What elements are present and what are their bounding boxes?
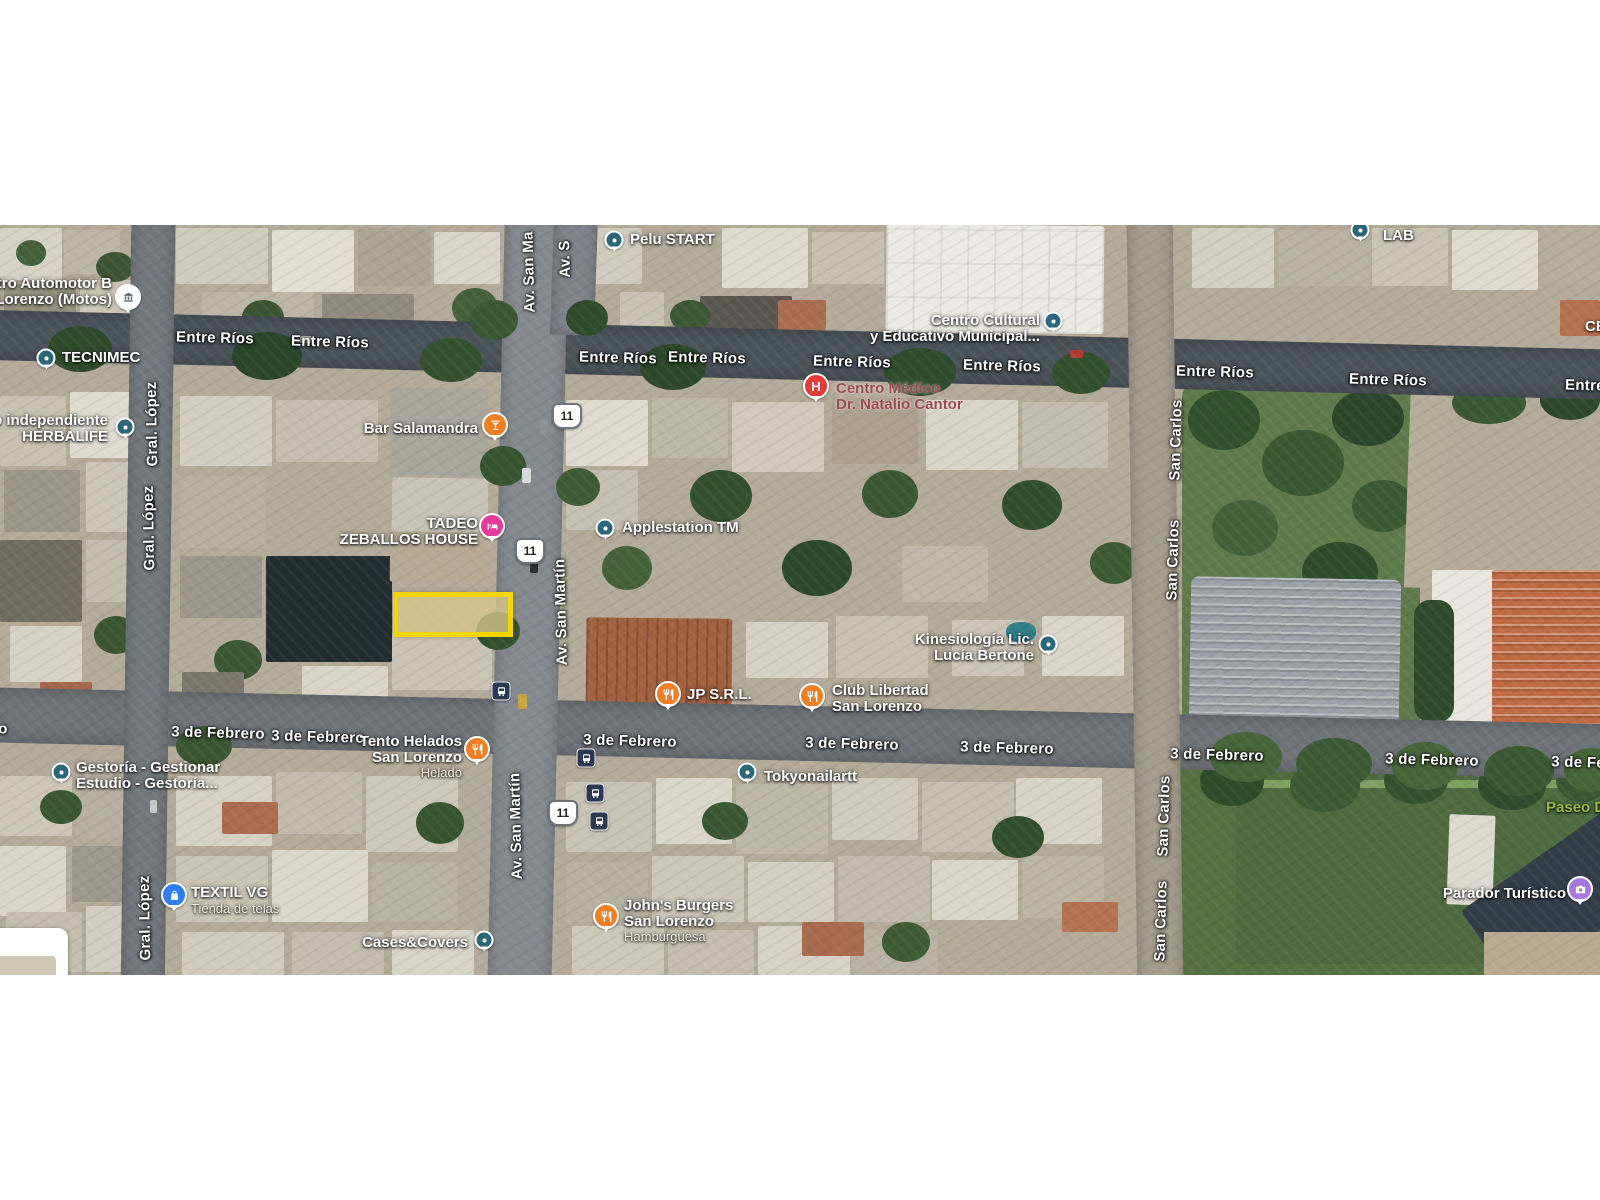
poi-label-line: Bar Salamandra (364, 421, 478, 437)
satellite-block (182, 932, 284, 975)
route-11-shield: 11 (515, 538, 545, 564)
tree-canopy (556, 468, 600, 506)
street-label-entre-r-os: Entre Ríos (1176, 362, 1254, 381)
poi-label-lab[interactable]: LAB (1383, 228, 1414, 244)
poi-label-line: TECNIMEC (62, 350, 140, 366)
poi-label-registro-automotor[interactable]: gistro Automotor Bn Lorenzo (Motos) (0, 276, 112, 307)
poi-label-line: Gestoría - Gestionar (76, 760, 220, 776)
tree-canopy (1332, 390, 1404, 446)
poi-label-applestation[interactable]: Applestation TM (622, 520, 739, 536)
tokyonailartt-generic-marker-icon[interactable] (738, 763, 757, 782)
tree-canopy (1484, 746, 1554, 796)
street-label-av-s: Av. S (556, 240, 574, 278)
marker-tail (1576, 899, 1584, 905)
satellite-block (620, 292, 664, 326)
street-label-san-carlos: San Carlos (1163, 519, 1182, 601)
satellite-block (802, 922, 864, 956)
poi-label-line: TEXTIL VG (191, 885, 268, 901)
bus-stop-icon[interactable] (586, 784, 605, 803)
poi-label-line: Centro Cultural (931, 313, 1040, 329)
satellite-block (1192, 228, 1274, 288)
registro-automotor-museum-marker-icon[interactable] (115, 284, 141, 310)
marker-tail (812, 396, 820, 402)
letterbox-top (0, 0, 1600, 225)
satellite-block (812, 232, 884, 284)
poi-label-gestoria[interactable]: Gestoría - GestionarEstudio - Gestoría..… (76, 760, 220, 791)
satellite-block (1452, 230, 1538, 290)
poi-label-line: Centro Médico (836, 381, 940, 397)
poi-label-line: n Lorenzo (Motos) (0, 292, 112, 308)
club-libertad-restaurant-marker-icon[interactable] (799, 683, 825, 709)
satellite-block (358, 228, 430, 286)
tree-canopy (690, 470, 752, 522)
bus-stop-icon[interactable] (492, 682, 511, 701)
map-inset-preview (0, 956, 56, 975)
satellite-block (180, 396, 272, 466)
poi-label-jp-srl[interactable]: JP S.R.L. (687, 687, 752, 703)
vehicle (1070, 350, 1083, 358)
street-label-3-de-febrero: 3 de Febrero (271, 727, 365, 746)
marker-tail (170, 905, 178, 911)
poi-label-tecnimec[interactable]: TECNIMEC (62, 350, 140, 366)
poi-label-tokyonailartt[interactable]: Tokyonailartt (764, 769, 857, 785)
marker-tail (491, 435, 499, 441)
satellite-block (0, 846, 66, 916)
poi-label-parador-turistico[interactable]: Parador Turístico (1443, 886, 1566, 902)
satellite-block (1189, 576, 1402, 728)
bar-salamandra-bar-marker-icon[interactable] (482, 412, 508, 438)
tree-canopy (1212, 500, 1278, 556)
poi-label-line: HERBALIFE (22, 429, 108, 445)
satellite-block (1062, 902, 1118, 932)
applestation-generic-marker-icon[interactable] (596, 519, 615, 538)
poi-label-tadeo-zeballos-house[interactable]: TADEOZEBALLOS HOUSE (340, 516, 478, 547)
tree-canopy (470, 300, 518, 340)
street-label-3-de-febrero: 3 de Febrero (171, 723, 265, 742)
poi-label-line: Lucía Bertone (934, 648, 1034, 664)
route-11-shield: 11 (552, 403, 582, 429)
poi-label-johns-burgers[interactable]: John's BurgersSan LorenzoHamburguesa (624, 898, 733, 944)
parador-turistico-photo-marker-icon[interactable] (1567, 876, 1593, 902)
tree-canopy (16, 240, 46, 266)
poi-label-ce-partial[interactable]: CE (1585, 319, 1600, 335)
poi-label-cases-covers[interactable]: Cases&Covers (362, 935, 468, 951)
marker-tail (744, 779, 750, 784)
poi-label-pelu-start[interactable]: Pelu START (630, 232, 715, 248)
gestoria-generic-marker-icon[interactable] (52, 763, 71, 782)
poi-label-line: Parador Turístico (1443, 886, 1566, 902)
poi-label-line: CE (1585, 319, 1600, 335)
satellite-block (272, 850, 368, 922)
satellite-block (276, 772, 362, 834)
poi-label-tento-helados[interactable]: Tento HeladosSan LorenzoHelado (360, 734, 462, 780)
poi-label-line: Tokyonailartt (764, 769, 857, 785)
road-surface (121, 225, 176, 975)
jp-srl-restaurant-marker-icon[interactable] (655, 681, 681, 707)
satellite-block (902, 546, 988, 602)
poi-label-paseo[interactable]: Paseo De (1546, 800, 1600, 816)
satellite-block (266, 556, 392, 662)
poi-label-line: Pelu START (630, 232, 715, 248)
tree-canopy (782, 540, 852, 596)
street-label-san-carlos: San Carlos (1166, 399, 1185, 481)
satellite-block (10, 626, 82, 682)
poi-label-line: gistro Automotor B (0, 276, 112, 292)
satellite-block (932, 860, 1018, 920)
street-label-3-de-febrero: 3 de Febrero (1551, 753, 1600, 772)
satellite-block (778, 300, 826, 330)
street-label-gral-l-pez: Gral. López (143, 381, 161, 466)
poi-label-club-libertad[interactable]: Club LibertadSan Lorenzo (832, 683, 929, 714)
street-label-entre-r-os: Entre Ríos (291, 332, 369, 351)
poi-label-line: Paseo De (1546, 800, 1600, 816)
poi-label-line: ado independiente (0, 413, 108, 429)
marker-tail (58, 779, 64, 784)
bus-stop-icon[interactable] (590, 812, 609, 831)
marker-tail (43, 365, 49, 370)
street-label-entre-r-os: Entre Ríos (1565, 376, 1600, 395)
satellite-block (838, 856, 930, 922)
satellite-block (736, 784, 828, 854)
satellite-block (1484, 932, 1600, 975)
poi-label-centro-cultural[interactable]: Centro Culturaly Educativo Municipal... (870, 313, 1040, 344)
marker-tail (1050, 328, 1056, 333)
marker-tail (124, 307, 132, 313)
vehicle (540, 420, 548, 433)
poi-label-bar-salamandra[interactable]: Bar Salamandra (364, 421, 478, 437)
tree-canopy (1296, 738, 1372, 790)
vehicle (518, 694, 527, 709)
satellite-block (746, 622, 828, 678)
satellite-block (434, 232, 500, 284)
street-label-av-san-mart-n: Av. San Martín (551, 558, 571, 665)
poi-label-herbalife[interactable]: ado independienteHERBALIFE (0, 413, 108, 444)
vehicle (150, 800, 157, 813)
johns-burgers-restaurant-marker-icon[interactable] (593, 903, 619, 929)
street-label-san-carlos: San Carlos (1154, 775, 1173, 857)
street-label-gral-l-pez: Gral. López (136, 875, 154, 960)
street-label-av-san-mart-n: Av. San Martín (506, 772, 526, 879)
poi-label-line: Kinesiología Lic. (915, 632, 1034, 648)
poi-label-line: LAB (1383, 228, 1414, 244)
street-label-3-de-febrero: 3 de Febrero (1385, 750, 1479, 769)
poi-label-subtitle: Helado (421, 765, 462, 780)
satellite-block (748, 862, 834, 922)
satellite-map-canvas[interactable]: Entre RíosEntre RíosEntre RíosEntre Ríos… (0, 225, 1600, 975)
satellite-block (176, 228, 268, 284)
poi-label-line: San Lorenzo (624, 914, 714, 930)
poi-label-centro-medico[interactable]: Centro MédicoDr. Natalio Cantor (836, 381, 963, 412)
poi-label-textil-vg[interactable]: TEXTIL VGTienda de telas (191, 885, 279, 916)
satellite-block (276, 400, 378, 462)
tree-canopy (566, 300, 608, 336)
street-label-entre-r-os: Entre Ríos (1349, 370, 1427, 389)
centro-medico-hospital-marker-icon[interactable]: H (803, 373, 829, 399)
tree-canopy (602, 546, 652, 590)
tree-canopy (992, 816, 1044, 858)
poi-label-line: Applestation TM (622, 520, 739, 536)
satellite-block (392, 632, 492, 690)
street-label-av-san-ma: Av. San Ma (519, 231, 538, 313)
tree-canopy (702, 802, 748, 840)
centro-cultural-generic-marker-icon[interactable] (1044, 312, 1063, 331)
poi-label-line: Tento Helados (360, 734, 462, 750)
tree-canopy (480, 446, 526, 486)
satellite-block (566, 782, 652, 852)
marker-tail (1045, 651, 1051, 656)
satellite-block (1022, 402, 1108, 468)
poi-label-line: JP S.R.L. (687, 687, 752, 703)
marker-tail (1357, 237, 1363, 242)
satellite-block (832, 778, 918, 840)
poi-label-line: San Lorenzo (372, 750, 462, 766)
satellite-block (1542, 228, 1600, 284)
marker-tail (602, 926, 610, 932)
street-label-3-de-febrero: 3 de Febrero (583, 731, 677, 750)
marker-tail (473, 759, 481, 765)
tree-canopy (1002, 480, 1062, 530)
tree-canopy (1352, 480, 1414, 532)
tree-canopy (882, 922, 930, 962)
herbalife-generic-marker-icon[interactable] (116, 418, 135, 437)
satellite-block (180, 476, 266, 548)
street-label-o: o (0, 721, 8, 738)
poi-label-line: John's Burgers (624, 898, 733, 914)
poi-label-line: TADEO (427, 516, 478, 532)
marker-tail (808, 706, 816, 712)
poi-label-subtitle: Tienda de telas (191, 901, 279, 916)
satellite-block (732, 402, 824, 472)
marker-tail (122, 434, 128, 439)
satellite-block (652, 398, 728, 458)
street-label-entre-r-os: Entre Ríos (813, 352, 891, 371)
marker-tail (602, 535, 608, 540)
tecnimec-generic-marker-icon[interactable] (37, 349, 56, 368)
satellite-block (4, 470, 80, 532)
vehicle (522, 468, 531, 483)
street-label-3-de-febrero: 3 de Febrero (805, 734, 899, 753)
bus-stop-icon[interactable] (577, 749, 596, 768)
poi-label-line: Cases&Covers (362, 935, 468, 951)
tree-canopy (40, 790, 82, 824)
satellite-block (722, 228, 808, 288)
map-inset-control[interactable] (0, 928, 68, 975)
poi-label-kinesiologia[interactable]: Kinesiología Lic.Lucía Bertone (915, 632, 1034, 663)
street-label-3-de-febrero: 3 de Febrero (1170, 745, 1264, 764)
tadeo-zeballos-house-lodging-marker-icon[interactable] (479, 513, 505, 539)
tree-canopy (420, 338, 482, 382)
street-label-entre-r-os: Entre Ríos (176, 328, 254, 347)
kinesiologia-generic-marker-icon[interactable] (1039, 635, 1058, 654)
satellite-block (1492, 570, 1600, 736)
poi-label-subtitle: Hamburguesa (624, 929, 706, 944)
poi-label-line: Estudio - Gestoría... (76, 776, 218, 792)
letterbox-bottom (0, 975, 1600, 1200)
tree-canopy (1188, 390, 1260, 450)
marker-tail (488, 536, 496, 542)
satellite-block (180, 556, 262, 618)
street-label-gral-l-pez: Gral. López (140, 485, 158, 570)
satellite-block (1106, 782, 1132, 846)
street-label-san-carlos: San Carlos (1151, 880, 1170, 962)
tree-canopy (1262, 430, 1344, 496)
tento-helados-restaurant-marker-icon[interactable] (464, 736, 490, 762)
pelu-start-generic-marker-icon[interactable] (605, 231, 624, 250)
poi-label-line: Dr. Natalio Cantor (836, 397, 963, 413)
marker-tail (611, 247, 617, 252)
street-label-entre-r-os: Entre Ríos (963, 356, 1041, 375)
satellite-block (372, 862, 458, 922)
poi-label-line: Club Libertad (832, 683, 929, 699)
marker-tail (664, 704, 672, 710)
street-label-entre-r-os: Entre Ríos (668, 348, 746, 367)
route-11-shield: 11 (548, 800, 578, 826)
tree-canopy (1052, 352, 1110, 394)
property-highlight-rectangle (393, 592, 513, 637)
satellite-block (0, 540, 82, 622)
marker-tail (481, 947, 487, 952)
tree-canopy (862, 470, 918, 518)
satellite-block (272, 230, 354, 292)
street-label-3-de-febrero: 3 de Febrero (960, 738, 1054, 757)
poi-label-line: y Educativo Municipal... (870, 329, 1040, 345)
tree-canopy (416, 802, 464, 844)
street-label-entre-r-os: Entre Ríos (579, 348, 657, 367)
cases-covers-generic-marker-icon[interactable] (475, 931, 494, 950)
poi-label-line: San Lorenzo (832, 699, 922, 715)
textil-vg-shopping-marker-icon[interactable] (161, 882, 187, 908)
satellite-block (222, 802, 278, 834)
poi-label-line: ZEBALLOS HOUSE (340, 532, 478, 548)
satellite-block (1414, 600, 1454, 722)
